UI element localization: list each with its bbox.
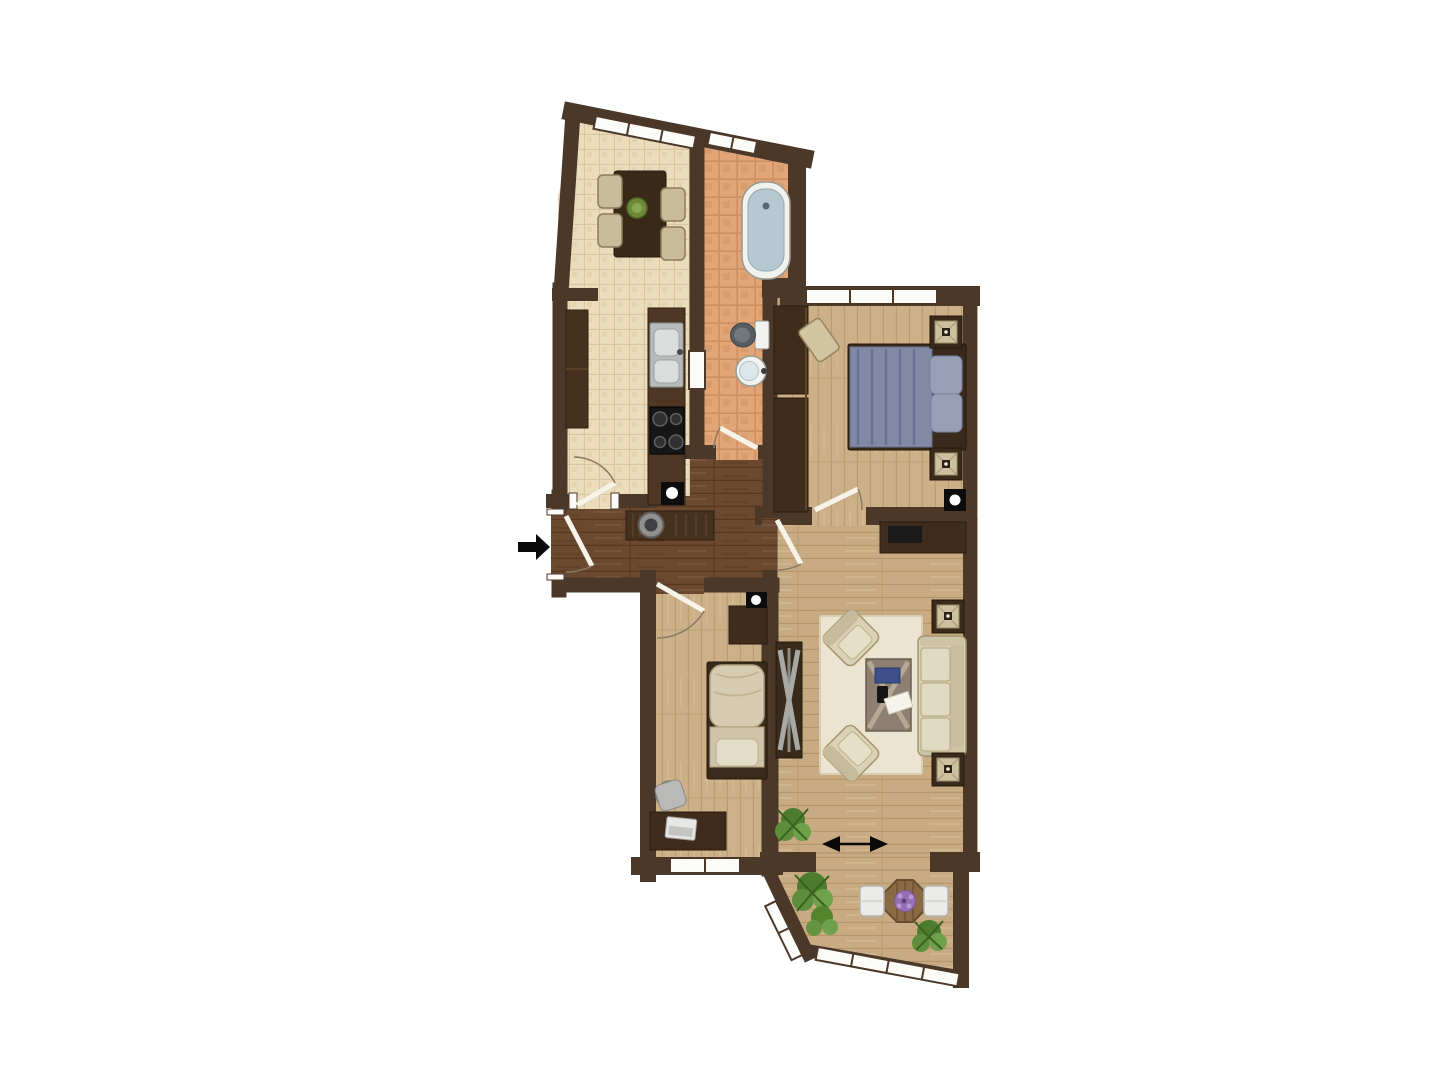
nightstand-lamp-dot	[944, 330, 948, 334]
balcony-flower-dot	[909, 895, 914, 900]
sofa-cushion	[921, 683, 950, 716]
balcony-flower-dot	[907, 904, 912, 909]
sofa-back	[950, 642, 964, 748]
balcony-plant-leaves	[813, 889, 833, 909]
dining-chair	[598, 214, 622, 247]
dining-table-plant-inner	[632, 203, 642, 213]
balcony-plant-leaves	[929, 933, 947, 951]
kitchen-sink-basin	[654, 329, 679, 356]
toilet-bowl-inner	[734, 328, 750, 343]
balcony-flower-dot	[897, 904, 902, 909]
stove-burner	[671, 414, 682, 425]
balcony-plant-leaves	[806, 920, 822, 936]
washbasin-tap	[761, 368, 767, 374]
entrance-arrow	[518, 534, 550, 560]
bathtub-inner	[748, 189, 784, 271]
wall-step-chunk	[762, 278, 806, 298]
wall-kitchen-pier	[552, 288, 598, 301]
single-bed-pillow	[716, 739, 758, 766]
plan-layer	[518, 112, 978, 986]
washing-machine-drum	[645, 519, 658, 532]
double-bed-blanket	[850, 347, 932, 447]
sofa-arm	[920, 637, 964, 646]
stove-burner	[653, 412, 667, 426]
balcony-flower-dot	[898, 894, 903, 899]
balcony-flower-center	[902, 899, 907, 904]
dining-chair	[661, 227, 685, 260]
sofa-cushion	[921, 648, 950, 681]
wall-niche	[689, 351, 705, 389]
bathtub-drain	[763, 203, 770, 210]
nightstand-lamp-dot	[944, 462, 948, 466]
entrance-opening	[551, 513, 567, 577]
kitchen-light-symbol-dot	[666, 487, 678, 499]
dining-chair	[598, 175, 622, 208]
bedroom-wardrobe	[774, 398, 808, 512]
kitchen-sink-basin	[654, 360, 679, 383]
side-table-lamp-dot	[946, 767, 950, 771]
table-book	[875, 668, 900, 683]
living-plant-leaves	[793, 823, 811, 841]
tv	[888, 526, 922, 543]
entrance-jamb	[547, 509, 564, 515]
kitchen-faucet	[677, 349, 683, 355]
kitchen-door-jamb	[611, 493, 619, 509]
dining-chair	[661, 188, 685, 221]
living-door-opening	[762, 518, 777, 570]
balcony-plant-leaves	[912, 934, 930, 952]
floor-plan-page	[0, 0, 1440, 1080]
sofa-cushion	[921, 718, 950, 751]
toilet-tank	[755, 321, 769, 349]
kitchen-door-jamb	[569, 493, 577, 509]
bedroom2-cabinet	[729, 606, 767, 644]
stove-burner	[655, 437, 666, 448]
bedroom-light-symbol-dot	[950, 495, 961, 506]
entrance-jamb	[547, 574, 564, 580]
washbasin-inner	[740, 362, 759, 381]
floor-plan-canvas	[0, 0, 1440, 1080]
bedroom-window	[806, 289, 937, 304]
bed-pillow	[930, 356, 962, 394]
balcony-plant-leaves	[822, 919, 838, 935]
stove-burner	[669, 435, 683, 449]
bed-pillow	[931, 394, 962, 432]
bedroom2-light-symbol-dot	[751, 595, 761, 605]
side-table-lamp-dot	[946, 614, 950, 618]
bedroom-wardrobe	[774, 306, 808, 394]
